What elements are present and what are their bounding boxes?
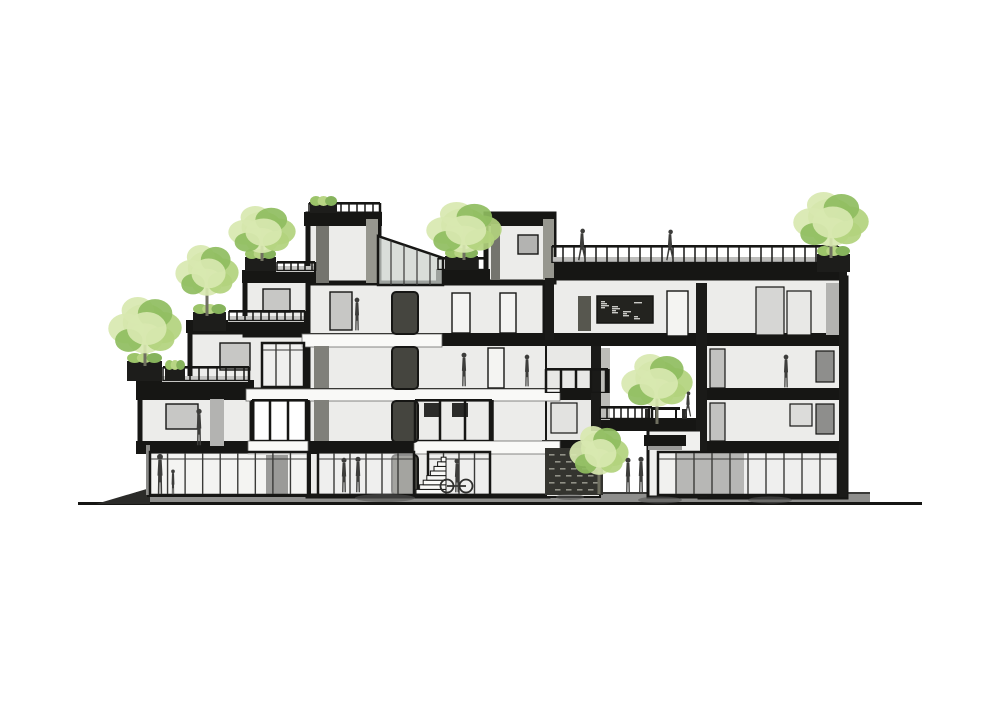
railing-l2-left-base: [252, 440, 308, 441]
slat-dash: [560, 468, 566, 470]
slat-dash: [566, 461, 572, 463]
pavement-mat: [355, 494, 415, 502]
gallery-band-l4: [302, 334, 442, 347]
slat-dash: [566, 489, 572, 491]
slat-dash: [549, 482, 555, 484]
figure-roof-walker-2-head: [668, 230, 672, 234]
railing-l2-left: [252, 399, 308, 402]
tower-inner-wall: [316, 226, 329, 283]
pavilion-canopy: [644, 435, 686, 446]
shelf-ladder: [578, 296, 591, 331]
bridge-left-column: [545, 278, 554, 340]
slat-dash: [588, 489, 594, 491]
pavement-mat: [638, 497, 682, 504]
slat-dash: [571, 468, 577, 470]
building-section-drawing: [0, 0, 1000, 707]
slat-dash: [577, 475, 583, 477]
doorframe-l3: [488, 348, 504, 388]
deck-step3: [276, 266, 314, 272]
planter-tree-4: [445, 256, 478, 270]
chalkboard-mark: [634, 302, 642, 303]
pavement-mat: [748, 497, 792, 504]
slat-dash: [560, 482, 566, 484]
figure-ground-pair-c-head: [625, 458, 630, 463]
planter-tree-5: [817, 254, 850, 272]
figure-l3-man-head: [462, 353, 467, 358]
figure-rightblock-woman-head: [784, 355, 789, 360]
core-wall-strip-l3: [314, 346, 329, 388]
window-penthouse: [518, 235, 538, 254]
chalkboard-mark: [601, 307, 605, 308]
figure-left-apartment-head: [196, 409, 201, 414]
chalkboard-panel: [597, 296, 653, 323]
chalkboard-mark: [601, 303, 607, 304]
window-step2: [220, 343, 250, 370]
slat-dash: [555, 489, 561, 491]
chalkboard-mark: [634, 318, 640, 319]
slat-dash: [571, 482, 577, 484]
figure-ground-bike-head: [455, 459, 460, 464]
tree-terrace-1-foliage: [127, 312, 167, 345]
window-right-l2: [816, 404, 834, 434]
slat-dash: [577, 489, 583, 491]
chalkboard-mark: [601, 301, 605, 302]
planter-tree-2: [193, 312, 226, 331]
closet-bridge-b: [787, 291, 811, 335]
tree-ground-foliage: [585, 439, 617, 468]
tower-side-face: [366, 219, 378, 283]
figure-void-terrace-head: [687, 392, 691, 396]
window-leftzone: [551, 403, 577, 433]
planter-tower-roof-plant: [325, 196, 337, 206]
planter-small-1-plant: [176, 360, 185, 370]
slat-dash: [582, 482, 588, 484]
architectural-section-page: [0, 0, 1000, 707]
pavilion-canopy-under: [648, 446, 682, 450]
figure-ground-pair-a-head: [341, 458, 346, 463]
railing-step3-terrace-base: [277, 270, 315, 271]
slat-dash: [588, 475, 594, 477]
railing-step3-terrace: [277, 261, 315, 264]
core-door-l3: [392, 347, 418, 389]
chalkboard-mark: [612, 312, 618, 313]
planter-tree-5-plant: [835, 246, 850, 256]
figure-ground-pair-d-head: [638, 457, 643, 462]
window-left-apartment: [166, 404, 198, 429]
planter-tree-1-plant: [147, 353, 162, 363]
doorframe-right-l3: [710, 349, 725, 388]
chalkboard-mark: [612, 306, 618, 307]
door-left-apartment: [210, 399, 224, 446]
doorframe-bridge: [667, 291, 688, 336]
bridge-right-face: [826, 283, 839, 335]
railing-void-terrace: [600, 406, 652, 409]
core-door-l4: [392, 292, 418, 334]
figure-tower-room-head: [355, 298, 360, 303]
chalkboard-mark: [623, 311, 631, 312]
stair-step: [441, 457, 446, 462]
tree-terrace-4-foliage: [446, 216, 487, 246]
slab-level3-right: [700, 388, 846, 400]
stair-step: [427, 476, 446, 481]
stair-step: [430, 471, 446, 476]
window-right-l2-b: [790, 404, 812, 426]
slat-dash: [560, 454, 566, 456]
core-wall-strip-l2: [314, 400, 329, 441]
figure-ground-child-head: [171, 470, 175, 474]
tree-roof-right-foliage: [813, 207, 854, 239]
slat-dash: [555, 475, 561, 477]
chalkboard-mark: [612, 308, 620, 309]
slat-dash: [549, 454, 555, 456]
chalkboard-mark: [601, 305, 609, 306]
figure-roof-walker-1-head: [580, 229, 585, 234]
tree-void-courtyard-foliage: [640, 368, 679, 399]
stair-step: [438, 462, 446, 467]
tree-terrace-3-foliage: [246, 219, 282, 247]
tower-room-door: [330, 292, 352, 330]
railing-balcony-mid: [415, 399, 492, 402]
slat-dash: [566, 475, 572, 477]
closet-bridge-a: [756, 287, 784, 335]
pavement-mat: [556, 494, 584, 500]
window-right-l3: [816, 351, 834, 382]
doorframe-l4-b: [500, 293, 516, 333]
doorframe-right-l2: [710, 403, 725, 441]
chalkboard-mark: [612, 310, 616, 311]
balcony-equipment-a: [424, 403, 440, 417]
chalkboard-mark: [623, 313, 627, 314]
slat-dash: [549, 468, 555, 470]
railing-void-terrace-base: [600, 418, 652, 419]
doorframe-l4-a: [452, 293, 470, 333]
chalkboard-mark: [623, 315, 629, 316]
figure-l3-woman-head: [525, 355, 530, 360]
slab-bridge-roof: [545, 262, 847, 279]
slat-dash: [555, 461, 561, 463]
chalkboard-mark: [634, 316, 638, 317]
railing-balcony-mid-base: [415, 440, 492, 441]
ground-baseline: [78, 502, 922, 505]
stair-step: [434, 466, 446, 471]
window-step3: [263, 289, 290, 312]
figure-ground-adult-head: [157, 454, 163, 460]
rightblock-right-wall: [839, 262, 847, 497]
tree-terrace-2-foliage: [192, 259, 226, 289]
figure-ground-pair-b-head: [355, 457, 360, 462]
planter-tree-2-plant: [211, 304, 226, 314]
